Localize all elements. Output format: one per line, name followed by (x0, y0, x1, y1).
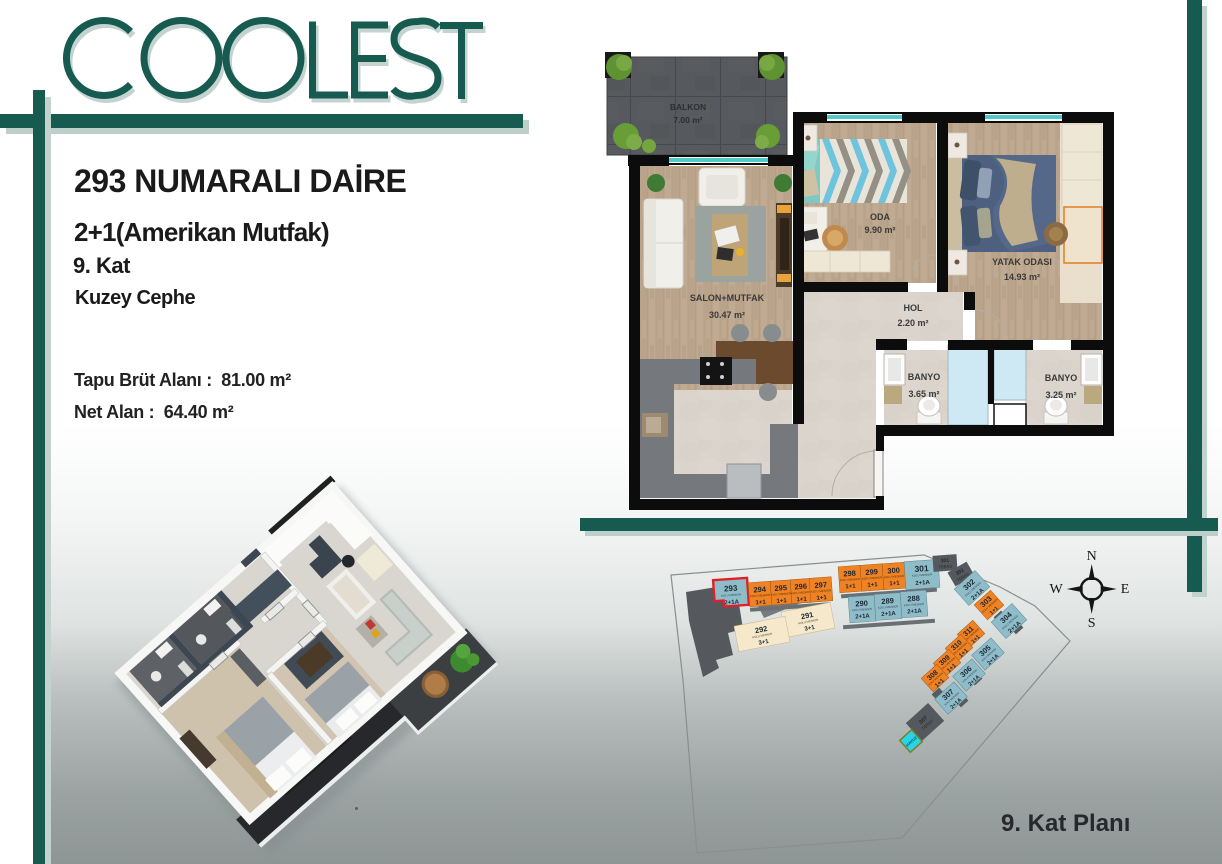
svg-text:2+1A: 2+1A (907, 608, 923, 615)
svg-text:BANYO: BANYO (908, 372, 941, 382)
svg-text:2+1A: 2+1A (855, 613, 871, 620)
svg-text:14.93 m²: 14.93 m² (1004, 272, 1040, 282)
svg-text:1+1: 1+1 (755, 600, 766, 607)
svg-text:E: E (1121, 582, 1130, 597)
svg-text:BANYO: BANYO (1045, 373, 1078, 383)
svg-text:2+1A: 2+1A (881, 611, 897, 618)
svg-text:1+1: 1+1 (776, 598, 787, 605)
svg-text:3.25 m²: 3.25 m² (1045, 390, 1076, 400)
svg-text:9.90 m²: 9.90 m² (864, 225, 895, 235)
svg-text:1+1: 1+1 (867, 582, 878, 589)
svg-text:30.47 m²: 30.47 m² (709, 310, 745, 320)
svg-text:1+1: 1+1 (889, 581, 900, 588)
svg-text:HOL: HOL (904, 303, 924, 313)
svg-text:BALKON: BALKON (670, 102, 706, 112)
svg-text:1+1: 1+1 (816, 595, 827, 602)
svg-text:N: N (1087, 549, 1097, 564)
svg-text:1+1: 1+1 (845, 584, 856, 591)
svg-text:2.20 m²: 2.20 m² (897, 318, 928, 328)
svg-text:TERAS: TERAS (938, 564, 952, 570)
svg-text:2+1A: 2+1A (724, 599, 740, 606)
svg-text:2+1A: 2+1A (915, 580, 931, 587)
svg-text:YATAK ODASI: YATAK ODASI (992, 257, 1052, 267)
svg-text:3.65 m²: 3.65 m² (908, 389, 939, 399)
svg-text:1+1: 1+1 (796, 597, 807, 604)
svg-text:S: S (1088, 616, 1096, 631)
svg-text:W: W (1049, 582, 1063, 597)
svg-text:ODA: ODA (870, 212, 891, 222)
svg-text:SALON+MUTFAK: SALON+MUTFAK (690, 293, 765, 303)
svg-text:7.00 m²: 7.00 m² (673, 115, 702, 125)
